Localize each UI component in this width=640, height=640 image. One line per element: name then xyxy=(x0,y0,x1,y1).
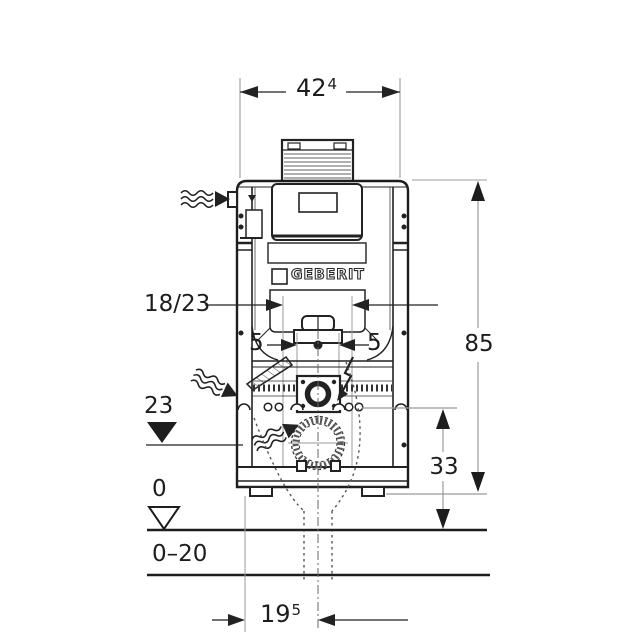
dim-top-width-label: 424 xyxy=(282,76,350,101)
dim-wall-opening-label: 18/23 xyxy=(144,293,210,316)
flush-plate xyxy=(272,184,362,240)
dim-offset-right-label: 5 xyxy=(367,332,382,355)
dim-front-depth-lines xyxy=(212,614,408,626)
dim-floor-zero-label: 0 xyxy=(152,478,167,501)
water-supply-connection xyxy=(228,192,262,238)
water-flow-arrow-supply xyxy=(181,191,230,208)
dim-top-width-value: 42 xyxy=(296,74,327,102)
dim-height-label: 85 xyxy=(458,331,500,358)
brand-logo: GEBERIT xyxy=(291,268,369,282)
technical-drawing-page: 424 18/23 5 5 23 0 0–20 85 33 195 GEBERI… xyxy=(0,0,640,640)
protection-box xyxy=(282,140,353,181)
logo-square xyxy=(272,269,287,284)
dim-supply-level-label: 23 xyxy=(144,395,173,418)
water-flow-arrow-inlet xyxy=(190,368,241,404)
dim-front-depth-label: 195 xyxy=(254,602,306,627)
level-marker-23 xyxy=(146,422,243,445)
service-opening xyxy=(268,243,366,263)
dim-top-width-sup: 4 xyxy=(328,75,338,93)
frame-mechanism xyxy=(238,357,407,412)
dim-offset-left-label: 5 xyxy=(249,332,264,355)
dim-front-depth-sup: 5 xyxy=(292,601,302,619)
dim-outlet-height-label: 33 xyxy=(423,454,465,481)
dim-front-depth-value: 19 xyxy=(260,600,291,628)
dim-floor-range-label: 0–20 xyxy=(152,543,207,566)
